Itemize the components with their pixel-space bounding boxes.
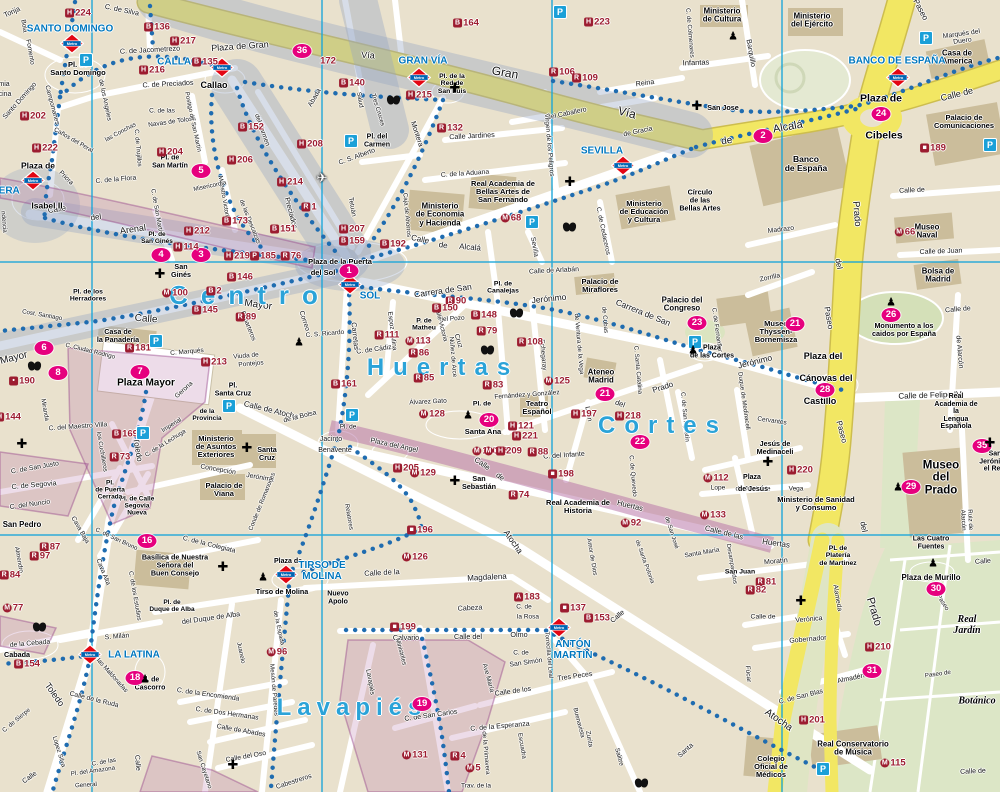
street-label: de [438,241,448,251]
street-label: Jerónimo [737,353,773,370]
poi-marker: H197 [571,409,597,420]
street-label: Jacinto [320,436,342,444]
place-label: Colegio Oficial de Médicos [754,755,788,779]
poi-number: 201 [809,715,825,726]
poi-icon-U: ■ [407,526,416,535]
street-label: Plaza de Gran [211,40,269,54]
street-label: Trav. de la [461,782,491,789]
street-label: Huertas [616,499,643,513]
poi-icon-R: R [450,752,459,761]
street-label: Calle de [945,305,971,315]
poi-number: 224 [75,8,91,19]
parking-icon: P [149,334,163,348]
poi-icon-B: B [14,660,23,669]
street-label: Sevilla [529,237,540,258]
theater-masks-icon [28,362,42,371]
poi-marker: M113 [405,336,430,347]
poi-marker: H223 [584,17,610,28]
poi-number: 87 [50,542,61,553]
poi-icon-R: R [236,313,245,322]
poi-icon-R: R [30,552,39,561]
parking-icon: P [816,762,830,776]
place-label: Ministerio de Cultura [703,8,742,25]
street-label: Atocha [762,708,794,735]
poi-icon-U: ■ [548,470,557,479]
street-label: C. de Preciados [142,79,193,89]
street-label: cina [0,91,11,99]
poi-number: 204 [167,147,183,158]
place-label: San Jose [707,104,739,112]
place-label: Ministerio de Sanidad y Consumo [777,496,855,512]
poi-marker: R73 [110,452,131,463]
street-label: C. de Cedaceros [594,206,611,255]
metro-logo-icon: Metro [21,170,45,196]
poi-number: 189 [930,143,946,154]
poi-number: 131 [412,750,428,761]
metro-station-label: GRAN VÍA [399,57,448,68]
place-label: Pl. de Duque de Alba [149,599,194,613]
poi-marker: ■137 [560,603,586,614]
place-label: Pl. de San Ginés [141,231,173,245]
street-label: Santa [677,742,696,760]
poi-icon-B: B [192,306,201,315]
poi-icon-M: M [501,214,510,223]
street-label: Alcalá [459,243,481,253]
poi-marker: M77 [3,603,24,614]
poi-number: 100 [172,288,188,299]
poi-number: 196 [417,525,433,536]
street-label: C. del Infante [543,451,585,461]
church-icon: ✚ [763,454,774,470]
place-label: Museo del Prado [923,459,959,496]
street-label: Alcalá [772,120,804,137]
place-label: Ministerio de Asuntos Exteriores [196,435,237,459]
street-label: Lope [711,484,725,491]
place-label: Nuevo Apolo [327,590,348,605]
street-label: Calle de la Ruda [69,690,120,709]
place-label: Ministerio del Ejército [791,13,833,30]
poi-marker: 172 [320,56,336,67]
poi-number: 88 [538,447,549,458]
poi-icon-B: B [471,311,480,320]
poi-number: 92 [631,518,642,529]
street-label: Verónica [795,615,823,625]
poi-number: 86 [419,348,430,359]
poi-number: 208 [307,139,323,150]
airplane-icon: ✈ [317,170,328,186]
poi-marker: H221 [512,431,538,442]
poi-icon-M: M [703,474,712,483]
poi-number: 79 [487,326,498,337]
poi-icon-H: H [20,112,29,121]
poi-marker: M66 [895,227,916,238]
poi-marker: H224 [65,8,91,19]
sight-marker: 36 [293,44,312,58]
poi-marker: H144 [0,412,21,423]
street-label: Mayor [0,350,29,367]
street-label: Desamparados [724,543,737,584]
poi-icon-U: ■ [560,604,569,613]
street-label: Toledo [131,438,144,463]
place-label: Isabel II [31,201,62,210]
poi-icon-H: H [615,412,624,421]
parking-icon: P [79,53,93,67]
place-label: Ministerio de Educación y Cultura [620,200,669,224]
poi-icon-B: B [584,614,593,623]
poi-marker: B135 [192,57,218,68]
statue-icon: ♟ [688,344,698,357]
street-label: C. de [513,649,529,656]
street-label: Calle de [960,768,986,777]
street-label: Prado [850,201,862,227]
poi-marker: ■196 [407,525,433,536]
poi-icon-R: R [0,571,9,580]
poi-number: 190 [19,376,35,387]
street-label: C. de Segovia [11,479,57,491]
svg-text:Metro: Metro [345,282,356,287]
street-label: San Simón [509,657,543,669]
place-label: Plaza [743,474,761,482]
poi-marker: M100 [162,288,188,299]
street-label: Fúcar [744,665,752,682]
place-label: San Sebastián [462,475,496,491]
street-label: Relatores [342,503,353,530]
poi-marker: H201 [799,715,825,726]
street-label: C. de Quevedo [627,455,637,497]
sight-marker: 7 [131,365,150,379]
place-label: Santa Cruz [257,446,277,462]
poi-icon-B: B [453,19,462,28]
poi-number: 221 [522,431,538,442]
street-label: de Ventura de la Vega [572,313,584,374]
street-label: Carretas [350,322,361,350]
poi-number: 89 [246,312,257,323]
poi-number: 144 [5,412,21,423]
street-label: C. de Dos Hermanas [195,706,259,722]
place-label: Casa de la Panadería [97,328,139,344]
poi-marker: B161 [331,379,357,390]
poi-icon-H: H [139,66,148,75]
parking-icon: P [983,138,997,152]
poi-number: 132 [447,123,463,134]
poi-number: 85 [424,373,435,384]
church-icon: ✚ [242,440,253,456]
poi-number: 5 [475,763,480,774]
poi-number: 74 [519,490,530,501]
street-label: Cost. Santiago [21,309,62,323]
place-label: San Juan [725,568,755,575]
poi-icon-H: H [496,447,505,456]
statue-icon: ♟ [258,571,268,584]
place-label: Cibeles [865,130,902,141]
poi-icon-H: H [227,156,236,165]
street-label: Tetuán [347,197,357,217]
poi-icon-M: M [465,764,474,773]
poi-number: 113 [415,336,430,347]
poi-marker: R111 [375,330,400,341]
poi-marker: R83 [483,380,504,391]
poi-number: 173 [232,216,248,227]
parking-icon: P [525,215,539,229]
sight-marker: 24 [872,107,891,121]
poi-marker: B154 [14,659,40,670]
church-icon: ✚ [228,757,239,773]
street-label: del [614,398,626,409]
statue-icon: ♟ [140,673,150,686]
street-label: C. de Sierpe [2,707,33,734]
poi-number: 66 [905,227,916,238]
place-label: Pl. Santa Cruz [215,382,252,397]
district-label: Lavapiés [277,695,428,721]
place-label: Pl. de Canalejas [487,281,519,296]
street-label: Olmo [510,631,527,639]
street-label: Huertas [762,538,791,550]
street-label: mia [0,81,10,89]
poi-number: 217 [180,36,196,47]
svg-text:Metro: Metro [554,625,565,630]
poi-marker: M5 [465,763,480,774]
street-label: Lopez Silva [50,736,66,769]
street-label: C. de Colmenares [683,8,694,58]
poi-marker: R97 [30,551,51,562]
street-label: Gobernador [789,635,827,646]
metro-station-label: LA LATINA [108,651,160,662]
poi-number: 115 [890,758,905,769]
street-label: C. de San Bruno [94,527,138,552]
poi-number: 76 [291,251,302,262]
street-label: los Cuchilleros [94,432,108,473]
poi-number: 4 [460,751,465,762]
metro-station-label: ÓPERA [0,187,20,198]
poi-icon-M: M [402,751,411,760]
poi-marker: A183 [514,592,540,603]
street-label: Calle de Arlabán [529,266,579,276]
poi-icon-H: H [0,413,4,422]
street-label: C. Marqués [170,347,204,357]
street-label: Paseo [822,306,834,330]
sight-marker: 29 [902,480,921,494]
sight-marker: 5 [192,164,211,178]
street-label: Correo [297,310,310,332]
poi-number: 164 [463,18,479,29]
poi-icon-R: R [528,448,537,457]
street-label: C. de las [149,107,175,114]
sight-marker: 28 [816,383,835,397]
street-label: Priora [57,169,74,186]
street-label: Calle [410,234,430,246]
poi-icon-M: M [419,410,428,419]
place-label: San Ginés [171,263,191,279]
theater-masks-icon [563,223,577,232]
poi-icon-R: R [437,124,446,133]
poi-number: 206 [237,155,253,166]
poi-icon-H: H [277,178,286,187]
poi-icon-M: M [410,469,419,478]
metro-station-label: ANTÓN MARTÍN [554,640,593,662]
street-label: de Santa Polonia [633,539,655,584]
place-label: Pl. del Carmen [364,133,390,148]
street-label: Calle de la [364,568,400,578]
poi-marker: B192 [380,239,406,250]
poi-number: 146 [237,272,253,283]
poi-marker: R132 [437,123,463,134]
metro-logo-icon: Metro [611,155,635,181]
poi-number: 96 [277,647,288,658]
poi-icon-M: M [880,759,889,768]
poi-number: 148 [481,310,497,321]
poi-icon-P: P [250,252,259,261]
place-label: Santa Ana [465,428,501,436]
street-label: Calle de las [704,524,744,541]
street-label: Pontejos [238,359,264,368]
poi-icon-B: B [339,237,348,246]
statue-icon: ♟ [463,409,473,422]
poi-number: 84 [10,570,21,581]
poi-marker: H222 [32,143,58,154]
sight-marker: 31 [863,664,882,678]
street-label: Calle de Abades [216,723,266,739]
poi-icon-M: M [402,553,411,562]
parking-icon: P [222,399,236,413]
poi-number: 154 [24,659,40,670]
sight-marker: 21 [596,387,615,401]
poi-number: 209 [506,446,522,457]
poi-number: 222 [42,143,58,154]
metro-station-label: BANCO DE ESPAÑA [848,57,945,68]
poi-icon-B: B [144,23,153,32]
poi-marker: B146 [227,272,253,283]
poi-number: 197 [581,409,597,420]
street-label: Calle de Juan [919,247,962,256]
poi-icon-M: M [3,604,12,613]
street-label: Salud [354,92,363,109]
poi-marker: R76 [281,251,302,262]
poi-number: 109 [582,73,598,84]
poi-number: 212 [194,226,210,237]
poi-number: 126 [412,552,428,563]
poi-number: 216 [149,65,165,76]
poi-icon-H: H [224,252,233,261]
poi-number: 210 [875,642,891,653]
street-label: Infantas [683,58,710,67]
place-label: Ateneo Madrid [588,369,614,386]
metro-logo-icon: Metro [547,617,571,643]
poi-number: 185 [260,251,276,262]
poi-icon-D: • [9,377,18,386]
street-label: de [721,136,734,149]
street-label: Fomento [24,39,35,65]
street-label: Buenavista [571,707,585,738]
poi-marker: H204 [157,147,183,158]
poi-number: 214 [287,177,303,188]
place-label: Plaza de [860,93,902,104]
poi-icon-B: B [227,273,236,282]
street-label: ndencia [0,211,7,233]
street-label: Zurita [584,730,594,748]
place-label: Pl. de [473,400,491,407]
poi-number: 207 [349,224,365,235]
street-label: C. de Silva [104,3,140,18]
street-label: Salitre [613,747,625,767]
sight-marker: 4 [152,248,171,262]
street-label: Paseo de [925,670,952,680]
poi-marker: M133 [700,510,726,521]
poi-marker: R181 [125,343,151,354]
street-label: Calle [21,770,38,785]
church-icon: ✚ [692,98,703,114]
poi-marker: B136 [144,22,170,33]
theater-masks-icon [481,346,495,355]
place-label: Pl. de Puerta Cerrada [95,479,125,500]
sight-marker: 30 [927,582,946,596]
street-label: Cava Alta [95,558,112,586]
street-label: Calle de [899,187,925,196]
street-label: de San José [663,516,679,550]
poi-number: 68 [511,213,522,224]
street-label: Calle de [751,613,776,620]
metro-logo-icon: Metro [886,67,910,93]
statue-icon: ♟ [928,557,938,570]
svg-text:Metro: Metro [893,75,904,80]
poi-marker: H217 [170,36,196,47]
poi-icon-B: B [192,58,201,67]
street-label: C. de la Encomienda [176,687,240,703]
poi-icon-H: H [799,716,808,725]
street-label: Atocha [502,529,525,556]
theater-masks-icon [387,96,401,105]
poi-number: 111 [385,330,400,341]
street-label: Cava Baja [69,515,90,544]
theater-masks-icon [510,309,524,318]
street-label: Cervantes [757,415,787,426]
poi-icon-M: M [700,511,709,520]
poi-marker: M96 [267,647,288,658]
poi-icon-H: H [865,643,874,652]
sight-marker: 22 [631,435,650,449]
church-icon: ✚ [155,266,166,282]
svg-text:Metro: Metro [414,75,425,80]
poi-marker: H202 [20,111,46,122]
church-icon: ✚ [985,435,996,451]
street-label: General [75,782,97,790]
poi-number: 133 [710,510,726,521]
theater-masks-icon [33,623,47,632]
parking-icon: P [553,5,567,19]
poi-icon-M: M [472,447,481,456]
place-label: Palacio de Comunicaciones [934,114,994,130]
poi-icon-R: R [414,374,423,383]
poi-icon-B: B [238,123,247,132]
place-label: San Pedro [3,521,42,529]
street-label: Abada [307,88,323,109]
street-label: Calle [473,456,492,472]
place-label: Casa de America [942,50,973,67]
street-label: San Cayetano [194,750,212,789]
place-label: Castillo [804,397,837,407]
place-label: de la Provincia [192,408,221,422]
poi-icon-R: R [375,331,384,340]
street-label: C. de los Estudios [126,571,141,621]
poi-marker: H215 [406,90,432,101]
parking-icon: P [919,31,933,45]
poi-marker: B140 [339,78,365,89]
street-label: Prado [863,596,883,628]
poi-icon-M: M [267,648,276,657]
street-label: del [90,213,102,223]
poi-icon-H: H [157,148,166,157]
street-label: Juanelo [234,642,245,665]
place-label: Bolsa de Madrid [922,268,955,285]
